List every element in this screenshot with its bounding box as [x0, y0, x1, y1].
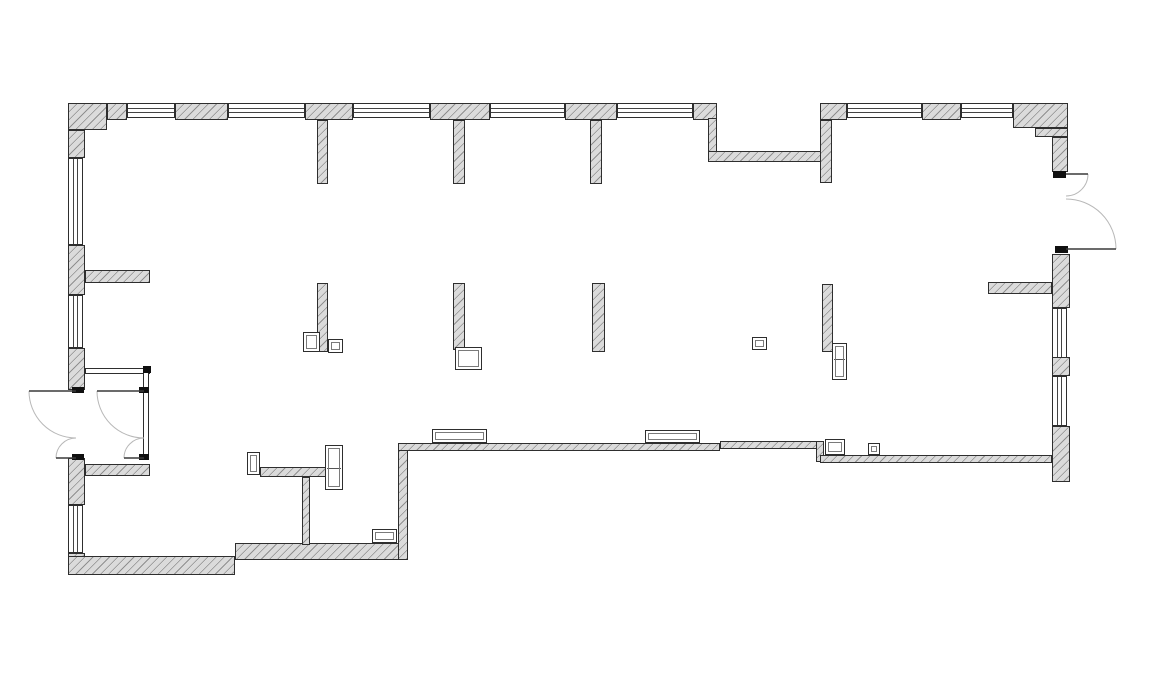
fixture-outline [752, 337, 767, 350]
vestibule-partition [85, 368, 150, 374]
window [68, 295, 83, 348]
window [961, 103, 1013, 118]
fixture-outline [303, 332, 320, 352]
wall-segment [85, 270, 150, 283]
wall-segment [107, 103, 127, 120]
wall-segment [85, 464, 150, 476]
window [1052, 376, 1067, 426]
wall-segment [398, 443, 720, 451]
fixture-outline [645, 430, 700, 443]
window [127, 103, 175, 118]
wall-segment [820, 103, 847, 120]
wall-segment [592, 283, 605, 352]
wall-segment [235, 543, 400, 560]
wall-segment [1052, 357, 1070, 376]
door-swing-arc [1066, 199, 1116, 249]
wall-segment [1052, 137, 1068, 172]
door-swing-layer [0, 0, 1153, 678]
wall-segment [68, 245, 85, 295]
wall-segment [565, 103, 617, 120]
wall-segment [708, 151, 822, 162]
fixture-outline [455, 347, 482, 370]
wall-segment [68, 556, 235, 575]
wall-segment [822, 284, 833, 352]
fixture-divider [834, 359, 845, 360]
wall-segment [988, 282, 1052, 294]
door-swing-arc [29, 391, 76, 438]
wall-segment [317, 120, 328, 184]
wall-segment [453, 283, 465, 350]
fixture-outline [832, 343, 847, 380]
wall-segment [175, 103, 228, 120]
fixture-divider [327, 468, 341, 469]
wall-segment [398, 443, 408, 560]
wall-segment [302, 477, 310, 545]
vestibule-partition [143, 368, 149, 460]
fixture-outline [372, 529, 397, 543]
wall-segment [1052, 254, 1070, 308]
wall-segment [1035, 128, 1068, 137]
fixture-outline [247, 452, 260, 475]
fixture-outline [825, 439, 845, 455]
door-hinge [143, 366, 151, 373]
door-swing-arc [97, 391, 144, 438]
wall-segment [68, 130, 85, 158]
wall-segment [1013, 103, 1068, 128]
fixture-outline [328, 339, 343, 353]
fixture-outline [432, 429, 487, 443]
fixture-outline [325, 445, 343, 490]
wall-segment [590, 120, 602, 184]
door-hinge [139, 387, 149, 393]
wall-segment [68, 103, 107, 130]
window [68, 158, 83, 245]
door-hinge [1053, 171, 1066, 178]
wall-segment [260, 467, 330, 477]
window [353, 103, 430, 118]
window [228, 103, 305, 118]
wall-segment [922, 103, 961, 120]
page: { "canvas":{"width":1153,"height":678,"b… [0, 0, 1153, 678]
wall-segment [453, 120, 465, 184]
fixture-outline [868, 443, 880, 455]
floor-plan-canvas [0, 0, 1153, 678]
window [1052, 308, 1067, 358]
wall-segment [820, 120, 832, 183]
window [617, 103, 693, 118]
window [68, 505, 83, 553]
wall-segment [68, 458, 85, 505]
window [490, 103, 565, 118]
window [847, 103, 922, 118]
wall-segment [720, 441, 818, 449]
door-hinge [72, 387, 84, 393]
wall-segment [1052, 426, 1070, 482]
door-hinge [72, 454, 84, 460]
door-hinge [1055, 246, 1068, 253]
door-swing-arc [1066, 174, 1088, 196]
wall-segment [305, 103, 353, 120]
wall-segment [820, 455, 1052, 463]
wall-segment [68, 348, 85, 390]
door-hinge [139, 454, 149, 460]
wall-segment [430, 103, 490, 120]
